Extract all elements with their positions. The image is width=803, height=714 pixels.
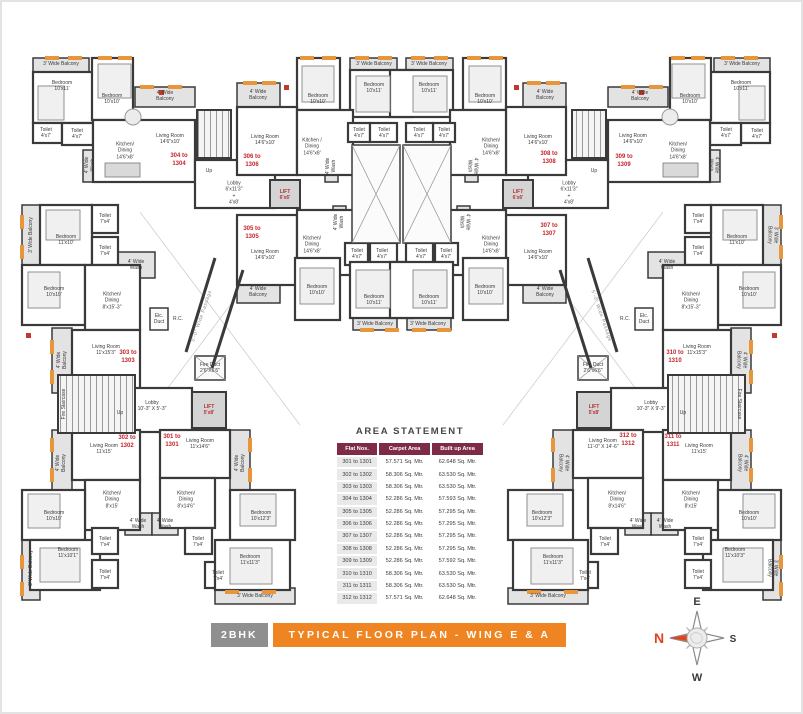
room-label: Up xyxy=(117,410,123,416)
room-label: Kitchen/ Dining 8'x14'6" xyxy=(177,491,195,510)
unit-number-label: 311 to 1311 xyxy=(664,434,681,450)
room-label: Living Room 14'6"x10' xyxy=(156,133,184,146)
area-table-row: 304 to 130452.286 Sq. Mtr.57.593 Sq. Mtr… xyxy=(337,494,483,504)
compass-east-label: E xyxy=(693,596,700,608)
flat-no-cell: 302 to 1302 xyxy=(337,469,377,479)
area-value-cell: 52.286 Sq. Mtr. xyxy=(379,544,430,554)
unit-number-label: 304 to 1304 xyxy=(170,153,187,169)
room-label: Up xyxy=(591,168,597,174)
room-label: Bedroom 10'x10' xyxy=(307,284,327,297)
area-value-cell: 52.286 Sq. Mtr. xyxy=(379,507,430,517)
room-label: Toilet 7'x4' xyxy=(692,245,704,258)
room-label: 3' Wide Balcony xyxy=(28,550,34,586)
room-label: Bedroom 10'x10' xyxy=(44,510,64,523)
room-label: 3' Wide Balcony xyxy=(530,593,566,599)
room-label: Living Room 14'6"x10' xyxy=(619,133,647,146)
room-label: Toilet 7'x4' xyxy=(692,536,704,549)
room-label: Living Room 14'6"x10' xyxy=(251,249,279,262)
area-table-row: 301 to 130157.571 Sq. Mtr.62.648 Sq. Mtr… xyxy=(337,457,483,467)
room-label: Fire Staircase xyxy=(736,389,742,420)
room-label: Living Room 11'x14'6" xyxy=(186,438,214,451)
bhk-badge: 2BHK xyxy=(211,623,268,647)
room-label: 4' Wide Balcony xyxy=(156,90,174,103)
room-label: Up xyxy=(680,410,686,416)
room-label: Bedroom 10'x12'3" xyxy=(532,510,552,523)
unit-number-label: 306 to 1306 xyxy=(243,154,260,170)
area-value-cell: 63.530 Sq. Mtr. xyxy=(432,482,483,492)
header-built-up-area: Built up Area xyxy=(432,443,483,455)
room-label: 3' Wide Balcony xyxy=(356,61,392,67)
room-label: Kitchen/ Dining 14'6"x8' xyxy=(116,142,134,161)
unit-number-label: 309 to 1309 xyxy=(615,154,632,170)
room-label: Living Room 11'x15' xyxy=(90,443,118,456)
room-label: Kitchen/ Dining 8'x14'6" xyxy=(608,491,626,510)
area-value-cell: 52.286 Sq. Mtr. xyxy=(379,556,430,566)
area-value-cell: 57.571 Sq. Mtr. xyxy=(379,457,430,467)
room-label: Kitchen/ Dining 14'6"x8' xyxy=(303,236,321,255)
area-table-body: 301 to 130157.571 Sq. Mtr.62.648 Sq. Mtr… xyxy=(337,457,483,604)
room-label: Toilet 7'x4' xyxy=(579,570,591,583)
room-label: Toilet 4'x7' xyxy=(438,127,450,140)
flat-no-cell: 312 to 1312 xyxy=(337,593,377,603)
area-table-row: 312 to 131257.571 Sq. Mtr.62.648 Sq. Mtr… xyxy=(337,593,483,603)
room-label: 4' Wide Wash xyxy=(128,259,145,272)
room-label: Toilet 4'x7' xyxy=(751,128,763,141)
area-value-cell: 63.530 Sq. Mtr. xyxy=(432,469,483,479)
room-label: Bedroom 11'x11'3" xyxy=(240,554,260,567)
flat-no-cell: 301 to 1301 xyxy=(337,457,377,467)
area-value-cell: 57.295 Sq. Mtr. xyxy=(432,519,483,529)
room-label: Toilet 7'x4' xyxy=(692,213,704,226)
room-label: Toilet 4'x7' xyxy=(413,127,425,140)
room-label: Bedroom 10'x11' xyxy=(731,80,751,93)
room-label: R.C. xyxy=(620,316,630,322)
room-label: Living Room 11'x15'3" xyxy=(683,344,711,357)
area-table-row: 311 to 131158.306 Sq. Mtr.63.530 Sq. Mtr… xyxy=(337,581,483,591)
compass-star-icon xyxy=(670,611,724,665)
unit-number-label: 312 to 1312 xyxy=(619,433,636,449)
room-label: Living Room 11'x15'3" xyxy=(92,344,120,357)
area-table-row: 302 to 130258.306 Sq. Mtr.63.530 Sq. Mtr… xyxy=(337,469,483,479)
room-label: LIFT 5'x8' xyxy=(204,404,215,417)
area-value-cell: 57.295 Sq. Mtr. xyxy=(432,507,483,517)
flat-no-cell: 306 to 1306 xyxy=(337,519,377,529)
title-bar: 2BHK TYPICAL FLOOR PLAN - WING E & A xyxy=(211,623,566,647)
room-label: Kitchen/ Dining 8'x15' xyxy=(682,491,700,510)
room-label: Bedroom 10'x10' xyxy=(475,284,495,297)
area-statement: AREA STATEMENT Flat Nos. Carpet Area Bui… xyxy=(335,426,485,606)
compass-south-label: S xyxy=(730,634,737,645)
room-label: 4' Wide Wash xyxy=(130,518,147,531)
room-label: Toilet 7'x4' xyxy=(99,213,111,226)
area-table-row: 310 to 131058.306 Sq. Mtr.63.530 Sq. Mtr… xyxy=(337,568,483,578)
room-label: 3' Wide Balcony xyxy=(766,553,779,584)
room-label: R.C. xyxy=(173,316,183,322)
room-label: Toilet 4'x7' xyxy=(353,127,365,140)
room-label: Toilet 7'x4' xyxy=(99,245,111,258)
area-table-row: 303 to 130358.306 Sq. Mtr.63.530 Sq. Mtr… xyxy=(337,482,483,492)
room-label: 4' Wide Wash xyxy=(466,158,479,175)
room-label: 3' Wide Balcony xyxy=(237,593,273,599)
room-label: 5'-0" Wide Passage xyxy=(589,289,613,342)
room-label: LIFT 6'x6' xyxy=(280,189,291,202)
room-label: Bedroom 10'x10' xyxy=(680,93,700,106)
room-label: Elc. Duct xyxy=(639,313,649,326)
room-label: 4' Wide Wash xyxy=(84,157,97,174)
flat-no-cell: 309 to 1309 xyxy=(337,556,377,566)
room-label: Bedroom 11'x10' xyxy=(727,234,747,247)
room-label: Kitchen / Dining 14'6"x8' xyxy=(302,138,321,157)
unit-number-label: 302 to 1302 xyxy=(118,435,135,451)
room-label: Kitchen/ Dining 14'6"x8' xyxy=(482,236,500,255)
room-label: 4' Wide Wash xyxy=(630,518,647,531)
room-label: 4' Wide Wash xyxy=(657,518,674,531)
room-label: Toilet 4'x7' xyxy=(40,127,52,140)
area-value-cell: 52.286 Sq. Mtr. xyxy=(379,519,430,529)
room-label: 3' Wide Balcony xyxy=(766,220,779,251)
room-label: Kitchen/ Dining 8'x15'-3" xyxy=(682,292,701,311)
area-value-cell: 62.648 Sq. Mtr. xyxy=(432,593,483,603)
room-label: Bedroom 10'x11' xyxy=(364,294,384,307)
flat-no-cell: 304 to 1304 xyxy=(337,494,377,504)
room-label: 3' Wide Balcony xyxy=(28,217,34,253)
room-label: 4' Wide Balcony xyxy=(735,351,748,369)
area-value-cell: 52.286 Sq. Mtr. xyxy=(379,494,430,504)
area-table-row: 309 to 130952.286 Sq. Mtr.57.592 Sq. Mtr… xyxy=(337,556,483,566)
room-label: Kitchen/ Dining 14'6"x8' xyxy=(669,142,687,161)
plan-title: TYPICAL FLOOR PLAN - WING E & A xyxy=(273,623,567,647)
room-label: 4' Wide Balcony xyxy=(536,286,554,299)
room-label: Bedroom 11'x10'1" xyxy=(58,547,78,560)
area-value-cell: 63.530 Sq. Mtr. xyxy=(432,581,483,591)
room-label: Kitchen/ Dining 8'x15' xyxy=(103,491,121,510)
area-value-cell: 58.306 Sq. Mtr. xyxy=(379,581,430,591)
room-label: Bedroom 11'x10' xyxy=(56,234,76,247)
room-label: 4' Wide Balcony xyxy=(736,454,749,472)
unit-number-label: 307 to 1307 xyxy=(540,223,557,239)
compass-north-label: N xyxy=(654,630,664,646)
area-value-cell: 63.530 Sq. Mtr. xyxy=(432,568,483,578)
room-label: 4' Wide Wash xyxy=(659,259,676,272)
room-label: Bedroom 11'x10'3" xyxy=(725,547,745,560)
area-table-row: 305 to 130552.286 Sq. Mtr.57.295 Sq. Mtr… xyxy=(337,507,483,517)
floor-plan-page: { "title_bar": { "badge": "2BHK", "title… xyxy=(0,0,803,714)
unit-number-label: 305 to 1305 xyxy=(243,226,260,242)
room-label: Toilet 7'x4' xyxy=(99,536,111,549)
unit-number-label: 308 to 1308 xyxy=(540,151,557,167)
room-label: Lobby 6'x11'3" + 4'x8' xyxy=(561,181,578,206)
room-label: 4' Wide Balcony xyxy=(536,89,554,102)
room-label: 4' Wide Wash xyxy=(333,214,346,231)
area-statement-title: AREA STATEMENT xyxy=(335,426,485,437)
room-label: Elc. Duct xyxy=(154,313,164,326)
room-label: Living Room 14'6"x10' xyxy=(251,134,279,147)
room-label: 4' Wide Wash xyxy=(157,518,174,531)
room-label: Toilet 7'x4' xyxy=(212,570,224,583)
room-label: 4' Wide Wash xyxy=(707,157,720,174)
area-value-cell: 57.593 Sq. Mtr. xyxy=(432,494,483,504)
unit-number-label: 303 to 1303 xyxy=(119,350,136,366)
room-label: Fire Staircase xyxy=(61,389,67,420)
unit-number-label: 310 to 1310 xyxy=(666,350,683,366)
room-label: Kitchen/ Dining 8'x15'-3" xyxy=(103,292,122,311)
room-label: Bedroom 10'x12'3" xyxy=(251,510,271,523)
room-label: 4' Wide Balcony xyxy=(249,89,267,102)
flat-no-cell: 310 to 1310 xyxy=(337,568,377,578)
area-value-cell: 58.306 Sq. Mtr. xyxy=(379,469,430,479)
room-label: Toilet 7'x4' xyxy=(692,569,704,582)
unit-number-label: 301 to 1301 xyxy=(163,434,180,450)
flat-no-cell: 303 to 1303 xyxy=(337,482,377,492)
room-label: LIFT 6'x6' xyxy=(513,189,524,202)
room-label: Toilet 7'x4' xyxy=(192,536,204,549)
room-label: Toilet 4'x7' xyxy=(415,248,427,261)
room-label: 4' Wide Balcony xyxy=(234,454,247,472)
room-label: 3' Wide Balcony xyxy=(724,61,760,67)
room-label: 4' Wide Balcony xyxy=(249,286,267,299)
flat-no-cell: 308 to 1308 xyxy=(337,544,377,554)
room-label: 4' Wide Balcony xyxy=(55,454,68,472)
room-label: Bedroom 10'x11' xyxy=(419,294,439,307)
room-label: Bedroom 10'x11' xyxy=(52,80,72,93)
room-label: Toilet 7'x4' xyxy=(599,536,611,549)
flat-no-cell: 307 to 1307 xyxy=(337,531,377,541)
room-label: Bedroom 10'x10' xyxy=(102,93,122,106)
area-value-cell: 58.306 Sq. Mtr. xyxy=(379,568,430,578)
room-label: Toilet 4'x7' xyxy=(376,248,388,261)
room-label: Living Room 14'6"x10' xyxy=(524,249,552,262)
room-label: Toilet 7'x4' xyxy=(99,569,111,582)
area-value-cell: 57.571 Sq. Mtr. xyxy=(379,593,430,603)
room-label: 4' Wide Balcony xyxy=(631,90,649,103)
room-label: Bedroom 10'x11' xyxy=(419,82,439,95)
area-table-row: 308 to 130852.286 Sq. Mtr.57.295 Sq. Mtr… xyxy=(337,544,483,554)
room-label: Fire Duct 2'6"x6'6" xyxy=(583,362,603,375)
area-value-cell: 57.295 Sq. Mtr. xyxy=(432,544,483,554)
area-value-cell: 58.306 Sq. Mtr. xyxy=(379,482,430,492)
room-label: Toilet 4'x7' xyxy=(378,127,390,140)
room-label: 3' Wide Balcony xyxy=(43,61,79,67)
compass-rose: E S W N xyxy=(642,590,752,686)
room-label: Kitchen/ Dining 14'6"x8' xyxy=(482,138,500,157)
room-label: 3' Wide Balcony xyxy=(411,61,447,67)
area-table: Flat Nos. Carpet Area Built up Area 301 … xyxy=(335,441,485,606)
room-label: 4' Wide Balcony xyxy=(557,454,570,472)
room-label: Up xyxy=(206,168,212,174)
room-label: Lobby 10'-3" X 5'-3" xyxy=(138,400,167,413)
room-label: Bedroom 10'x10' xyxy=(475,93,495,106)
room-label: Toilet 4'x7' xyxy=(71,128,83,141)
room-label: Bedroom 10'x11' xyxy=(364,82,384,95)
room-label: 3' Wide Balcony xyxy=(357,321,393,327)
room-label: Bedroom 10'x10' xyxy=(739,510,759,523)
room-label: Bedroom 10'x10' xyxy=(44,286,64,299)
room-label: Bedroom 11'x11'3" xyxy=(543,554,563,567)
area-table-header-row: Flat Nos. Carpet Area Built up Area xyxy=(337,443,483,455)
area-value-cell: 57.592 Sq. Mtr. xyxy=(432,556,483,566)
flat-no-cell: 311 to 1311 xyxy=(337,581,377,591)
room-label: Living Room 11'x15' xyxy=(685,443,713,456)
area-value-cell: 62.648 Sq. Mtr. xyxy=(432,457,483,467)
flat-no-cell: 305 to 1305 xyxy=(337,507,377,517)
room-label: Lobby 10'-3" X 9'-3" xyxy=(637,400,666,413)
area-value-cell: 52.286 Sq. Mtr. xyxy=(379,531,430,541)
room-label: Toilet 4'x7' xyxy=(720,127,732,140)
room-label: 5'-0" Wide Passage xyxy=(190,289,214,342)
area-value-cell: 57.295 Sq. Mtr. xyxy=(432,531,483,541)
room-label: 4' Wide Balcony xyxy=(56,351,69,369)
room-label: Bedroom 10'x10' xyxy=(308,93,328,106)
room-label: 4' Wide Wash xyxy=(325,158,338,175)
room-label: Bedroom 10'x10' xyxy=(739,286,759,299)
room-label: Living Room 14'6"x10' xyxy=(524,134,552,147)
room-label: Toilet 4'x7' xyxy=(440,248,452,261)
compass-west-label: W xyxy=(692,672,703,684)
header-carpet-area: Carpet Area xyxy=(379,443,430,455)
room-label: LIFT 5'x8' xyxy=(589,404,600,417)
room-label: Living Room 11'-0" X 14'-6" xyxy=(587,438,618,451)
room-label: Toilet 4'x7' xyxy=(351,248,363,261)
room-label: Fire Duct 2'6"X6'6" xyxy=(200,362,220,375)
room-label: 3' Wide Balcony xyxy=(410,321,446,327)
area-table-row: 306 to 130652.286 Sq. Mtr.57.295 Sq. Mtr… xyxy=(337,519,483,529)
header-flat-nos: Flat Nos. xyxy=(337,443,377,455)
room-label: 4' Wide Wash xyxy=(458,214,471,231)
area-table-row: 307 to 130752.286 Sq. Mtr.57.295 Sq. Mtr… xyxy=(337,531,483,541)
room-label: Lobby 6'x11'3" + 4'x8' xyxy=(226,181,243,206)
